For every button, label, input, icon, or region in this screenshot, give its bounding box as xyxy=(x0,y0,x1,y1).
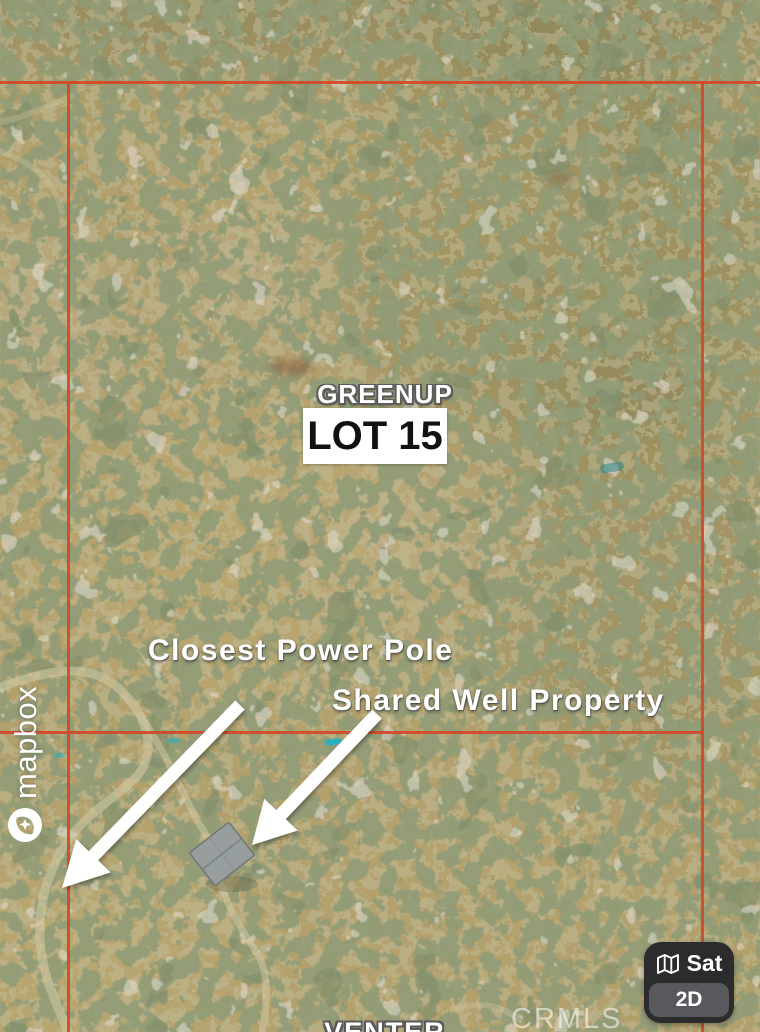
property-boundary-top xyxy=(0,81,760,84)
shared-well-annotation: Shared Well Property xyxy=(332,684,665,718)
lot-label: LOT 15 xyxy=(307,414,443,459)
mapbox-wordmark: mapbox xyxy=(10,686,41,799)
photo-grain xyxy=(0,0,760,1032)
mapbox-attribution[interactable]: mapbox xyxy=(5,661,45,843)
lot-label-box: LOT 15 xyxy=(303,408,447,464)
view-2d-button[interactable]: 2D xyxy=(649,983,729,1017)
map-layer-control[interactable]: Sat 2D xyxy=(644,942,734,1023)
property-boundary-middle xyxy=(0,731,704,734)
satellite-toggle-label: Sat xyxy=(687,950,723,977)
power-pole-annotation: Closest Power Pole xyxy=(148,634,453,668)
road-label: VENTER xyxy=(324,1017,446,1032)
mapbox-logo-icon xyxy=(7,807,43,843)
property-boundary-left xyxy=(67,81,70,1032)
map-icon xyxy=(656,953,680,975)
map-viewport[interactable]: GREENUP LOT 15 Closest Power Pole Shared… xyxy=(0,0,760,1032)
area-label: GREENUP xyxy=(317,379,453,410)
satellite-toggle[interactable]: Sat xyxy=(656,944,723,983)
satellite-imagery[interactable] xyxy=(0,0,760,1032)
view-2d-label: 2D xyxy=(676,988,703,1012)
mls-watermark: CRMLS xyxy=(511,1003,623,1032)
property-boundary-right xyxy=(701,81,704,1032)
